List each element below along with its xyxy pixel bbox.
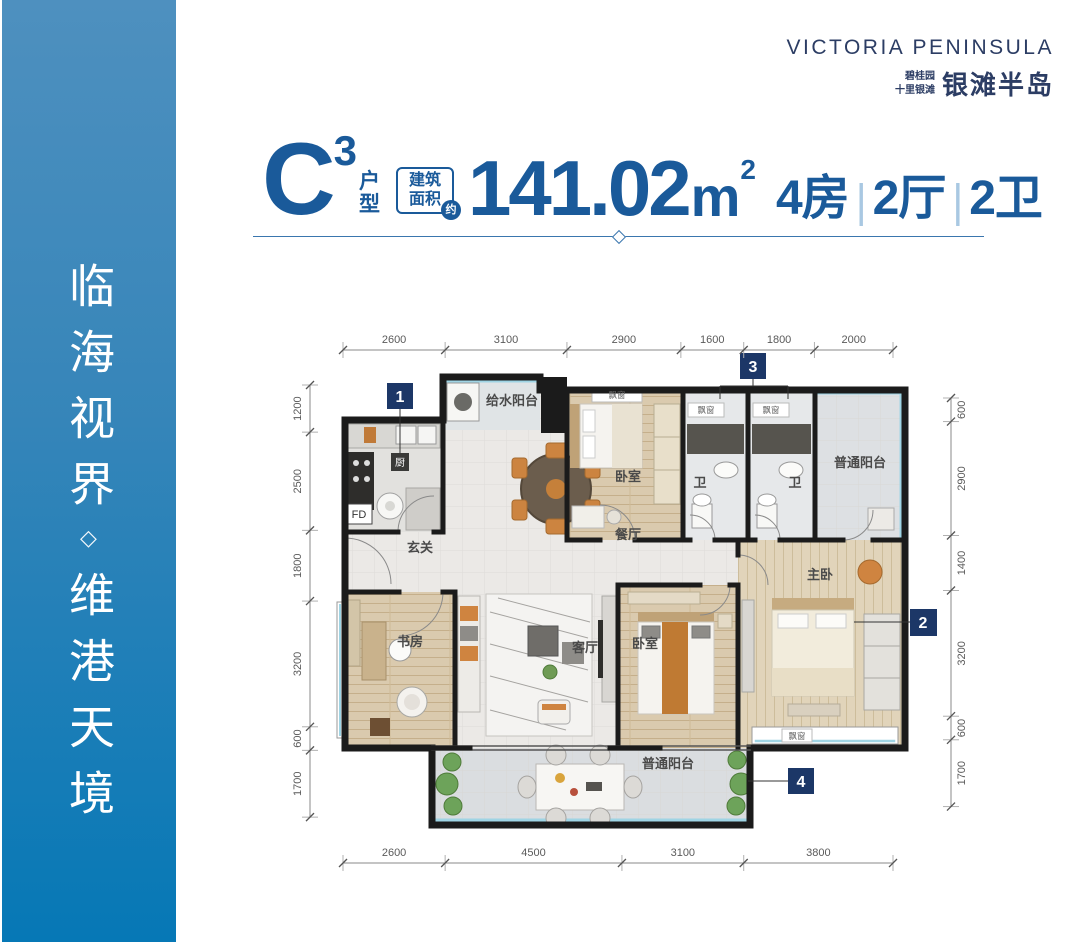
label-dining: 餐厅	[614, 527, 641, 542]
floorplan-poster: 临海视界◇维港天境 VICTORIA PENINSULA 碧桂园 十里银滩 银滩…	[0, 0, 1080, 942]
label-balcony-top: 普通阳台	[834, 455, 886, 470]
marker-2-label: 2	[919, 615, 928, 632]
svg-text:1600: 1600	[700, 334, 724, 346]
label-entry: 玄关	[407, 540, 433, 555]
svg-text:1800: 1800	[767, 334, 791, 346]
svg-text:2900: 2900	[612, 334, 636, 346]
svg-text:4500: 4500	[521, 847, 545, 859]
svg-text:3100: 3100	[494, 334, 518, 346]
label-bay-window-bedroom: 飘窗	[608, 390, 625, 400]
label-bath-2: 卫	[788, 475, 801, 490]
floorplan-drawing: 给水阳台 餐厅 玄关 卧室 卫 卫 普通阳台 书房 客厅 卧室 主卧 普通阳台 …	[0, 0, 1080, 942]
marker-4-label: 4	[797, 774, 806, 791]
svg-text:2900: 2900	[956, 466, 968, 490]
svg-text:600: 600	[956, 401, 968, 419]
svg-text:2500: 2500	[292, 469, 304, 493]
svg-text:2000: 2000	[841, 334, 865, 346]
label-bay-window-bath2: 飘窗	[762, 405, 779, 415]
label-bay-window-bath1: 飘窗	[697, 405, 714, 415]
svg-text:1700: 1700	[292, 772, 304, 796]
marker-3-label: 3	[749, 359, 758, 376]
label-study: 书房	[397, 634, 423, 649]
label-bath-1: 卫	[693, 475, 706, 490]
svg-text:2600: 2600	[382, 847, 406, 859]
svg-text:600: 600	[956, 719, 968, 737]
svg-text:3800: 3800	[806, 847, 830, 859]
svg-text:3100: 3100	[671, 847, 695, 859]
svg-text:1800: 1800	[292, 553, 304, 577]
marker-1-label: 1	[396, 389, 405, 406]
label-fd: FD	[352, 509, 367, 521]
svg-text:1700: 1700	[956, 761, 968, 785]
label-balcony-bottom: 普通阳台	[642, 756, 694, 771]
svg-text:3200: 3200	[292, 652, 304, 676]
svg-text:1400: 1400	[956, 551, 968, 575]
label-bedroom-top: 卧室	[615, 469, 641, 484]
svg-text:3200: 3200	[956, 641, 968, 665]
label-master: 主卧	[807, 567, 833, 582]
label-living: 客厅	[572, 640, 598, 655]
label-bay-window-master: 飘窗	[788, 731, 805, 741]
svg-text:1200: 1200	[292, 396, 304, 420]
label-kitchen: 厨	[395, 457, 405, 469]
svg-text:2600: 2600	[382, 334, 406, 346]
label-supply-balcony: 给水阳台	[486, 393, 538, 408]
label-bedroom-mid: 卧室	[632, 636, 658, 651]
svg-text:600: 600	[292, 729, 304, 747]
